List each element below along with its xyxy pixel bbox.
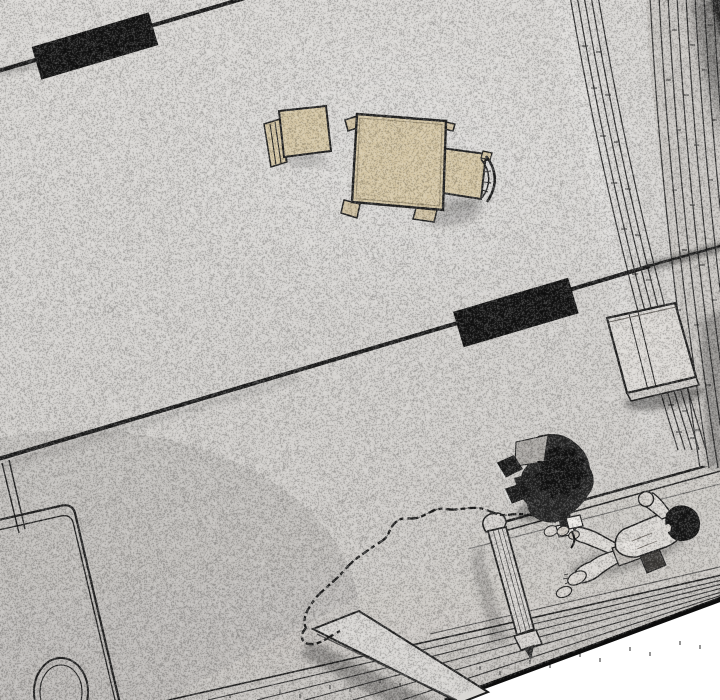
panel-artwork xyxy=(0,0,720,700)
fist xyxy=(639,492,654,507)
table xyxy=(341,114,455,222)
comic-panel xyxy=(0,0,720,700)
